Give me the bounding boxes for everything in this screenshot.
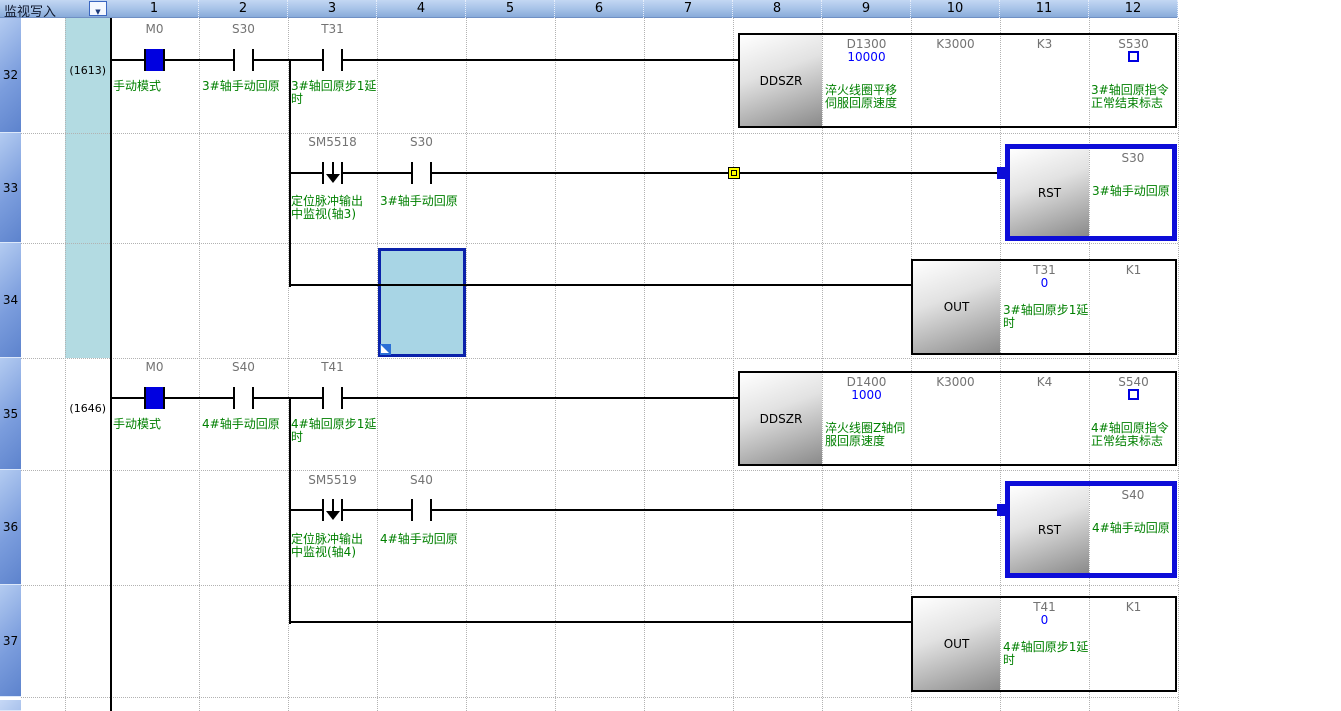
rung-line bbox=[289, 284, 913, 286]
column-header-5: 5 bbox=[466, 0, 555, 18]
instruction-mnemonic: RST bbox=[1010, 149, 1089, 236]
operand-comment: 3#轴回原指令 正常结束标志 bbox=[1091, 84, 1177, 110]
column-header-11: 11 bbox=[1000, 0, 1089, 18]
instruction-mnemonic: OUT bbox=[913, 598, 1000, 690]
column-header-7: 7 bbox=[644, 0, 733, 18]
ladder-monitor-view: 监视写入 ▼ 1 2 3 4 5 6 7 8 9 10 11 12 32 33 … bbox=[0, 0, 1341, 711]
device-label: S30 bbox=[377, 135, 466, 149]
grid-line bbox=[65, 18, 67, 711]
contact-sm5519-falling-edge[interactable] bbox=[322, 499, 343, 521]
operand-monitor-value: 1000 bbox=[822, 388, 911, 402]
device-comment: 4#轴手动回原 bbox=[202, 418, 286, 431]
device-label: S40 bbox=[199, 360, 288, 374]
grid-line bbox=[644, 18, 646, 711]
instruction-mnemonic: DDSZR bbox=[740, 35, 822, 126]
grid-line bbox=[21, 585, 1178, 587]
selection-notch bbox=[997, 167, 1005, 179]
row-header-33[interactable]: 33 bbox=[0, 133, 21, 243]
row-header-38[interactable] bbox=[0, 700, 21, 711]
operand-device: S530 bbox=[1089, 37, 1178, 51]
device-comment: 4#轴手动回原 bbox=[380, 533, 464, 546]
contact-m0-2[interactable] bbox=[144, 387, 165, 409]
operand-monitor-value: 0 bbox=[1000, 276, 1089, 290]
device-label: M0 bbox=[110, 22, 199, 36]
device-label: S30 bbox=[199, 22, 288, 36]
dropdown-button[interactable]: ▼ bbox=[89, 1, 107, 16]
grid-line bbox=[377, 18, 379, 711]
chevron-down-icon: ▼ bbox=[95, 8, 100, 16]
row-header-37[interactable]: 37 bbox=[0, 585, 21, 697]
rung-line bbox=[110, 397, 740, 399]
device-label: SM5518 bbox=[288, 135, 377, 149]
grid-line bbox=[21, 133, 1178, 135]
contact-s30[interactable] bbox=[233, 49, 254, 71]
operand-comment: 淬火线圈Z轴伺 服回原速度 bbox=[825, 422, 911, 448]
contact-s40[interactable] bbox=[233, 387, 254, 409]
falling-edge-stem bbox=[332, 499, 334, 511]
operand-device: D1300 bbox=[822, 37, 911, 51]
operand-device: K3000 bbox=[911, 375, 1000, 389]
contact-m0[interactable] bbox=[144, 49, 165, 71]
instruction-mnemonic: OUT bbox=[913, 261, 1000, 353]
contact-sm5518-falling-edge[interactable] bbox=[322, 162, 343, 184]
step-number-1646: (1646) bbox=[58, 402, 106, 415]
operand-comment: 3#轴回原步1延 时 bbox=[1003, 304, 1089, 330]
mnemonic-text: DDSZR bbox=[760, 74, 803, 88]
operand-device: K3 bbox=[1000, 37, 1089, 51]
operand-device: S40 bbox=[1089, 488, 1177, 502]
device-label: M0 bbox=[110, 360, 199, 374]
grid-line bbox=[733, 18, 735, 711]
monitor-mode-label: 监视写入 bbox=[4, 1, 74, 17]
column-header-2: 2 bbox=[199, 0, 288, 18]
cell-cursor-icon bbox=[380, 344, 391, 355]
grid-line bbox=[466, 18, 468, 711]
rung-line bbox=[289, 172, 1005, 174]
operand-device: K1 bbox=[1089, 263, 1178, 277]
grid-line bbox=[21, 470, 1178, 472]
device-comment: 定位脉冲输出 中监视(轴4) bbox=[291, 533, 369, 559]
device-label: SM5519 bbox=[288, 473, 377, 487]
operand-device: T41 bbox=[1000, 600, 1089, 614]
rung-line bbox=[289, 621, 913, 623]
operand-comment: 4#轴手动回原 bbox=[1092, 522, 1176, 535]
device-comment: 3#轴手动回原 bbox=[380, 195, 464, 208]
column-header-8: 8 bbox=[733, 0, 822, 18]
off-state-indicator bbox=[1128, 389, 1139, 400]
selection-notch bbox=[997, 504, 1005, 516]
contact-t41[interactable] bbox=[322, 387, 343, 409]
device-label: T41 bbox=[288, 360, 377, 374]
device-comment: 手动模式 bbox=[113, 418, 197, 431]
instruction-mnemonic: RST bbox=[1010, 486, 1089, 573]
row-header-36[interactable]: 36 bbox=[0, 470, 21, 585]
column-header-12: 12 bbox=[1089, 0, 1178, 18]
operand-device: K4 bbox=[1000, 375, 1089, 389]
instruction-mnemonic: DDSZR bbox=[740, 373, 822, 464]
operand-comment: 4#轴回原步1延 时 bbox=[1003, 641, 1089, 667]
falling-edge-stem bbox=[332, 162, 334, 174]
column-header-10: 10 bbox=[911, 0, 1000, 18]
column-header-3: 3 bbox=[288, 0, 377, 18]
operand-comment: 淬火线圈平移 伺服回原速度 bbox=[825, 84, 911, 110]
off-state-indicator bbox=[1128, 51, 1139, 62]
step-number-1613: (1613) bbox=[58, 64, 106, 77]
contact-t31[interactable] bbox=[322, 49, 343, 71]
mnemonic-text: OUT bbox=[944, 300, 970, 314]
falling-edge-arrow-icon bbox=[326, 511, 340, 520]
operand-comment: 3#轴手动回原 bbox=[1092, 185, 1176, 198]
column-header-6: 6 bbox=[555, 0, 644, 18]
row-header-34[interactable]: 34 bbox=[0, 243, 21, 358]
rung-line bbox=[110, 59, 740, 61]
selected-cell[interactable] bbox=[378, 248, 466, 357]
device-comment: 手动模式 bbox=[113, 80, 197, 93]
column-header-9: 9 bbox=[822, 0, 911, 18]
operand-device: S30 bbox=[1089, 151, 1177, 165]
grid-line bbox=[21, 697, 1178, 699]
mnemonic-text: RST bbox=[1038, 523, 1061, 537]
column-header-1: 1 bbox=[110, 0, 199, 18]
column-header-4: 4 bbox=[377, 0, 466, 18]
device-comment: 3#轴回原步1延 时 bbox=[291, 80, 377, 106]
device-comment: 定位脉冲输出 中监视(轴3) bbox=[291, 195, 369, 221]
falling-edge-arrow-icon bbox=[326, 174, 340, 183]
device-label: T31 bbox=[288, 22, 377, 36]
operand-device: K3000 bbox=[911, 37, 1000, 51]
grid-line bbox=[21, 243, 1178, 245]
device-comment: 4#轴回原步1延 时 bbox=[291, 418, 377, 444]
operand-device: S540 bbox=[1089, 375, 1178, 389]
operand-device: D1400 bbox=[822, 375, 911, 389]
grid-line bbox=[555, 18, 557, 711]
contact-s30-2[interactable] bbox=[411, 162, 432, 184]
device-label: S40 bbox=[377, 473, 466, 487]
mnemonic-text: OUT bbox=[944, 637, 970, 651]
operand-monitor-value: 0 bbox=[1000, 613, 1089, 627]
mnemonic-text: RST bbox=[1038, 186, 1061, 200]
operand-device: T31 bbox=[1000, 263, 1089, 277]
rung-line bbox=[289, 509, 1005, 511]
row-header-35[interactable]: 35 bbox=[0, 358, 21, 470]
contact-s40-2[interactable] bbox=[411, 499, 432, 521]
operand-comment: 4#轴回原指令 正常结束标志 bbox=[1091, 422, 1177, 448]
grid-line bbox=[1178, 18, 1180, 711]
operand-monitor-value: 10000 bbox=[822, 50, 911, 64]
mnemonic-text: DDSZR bbox=[760, 412, 803, 426]
device-comment: 3#轴手动回原 bbox=[202, 80, 286, 93]
connection-marker bbox=[728, 167, 740, 179]
row-header-32[interactable]: 32 bbox=[0, 18, 21, 133]
operand-device: K1 bbox=[1089, 600, 1178, 614]
